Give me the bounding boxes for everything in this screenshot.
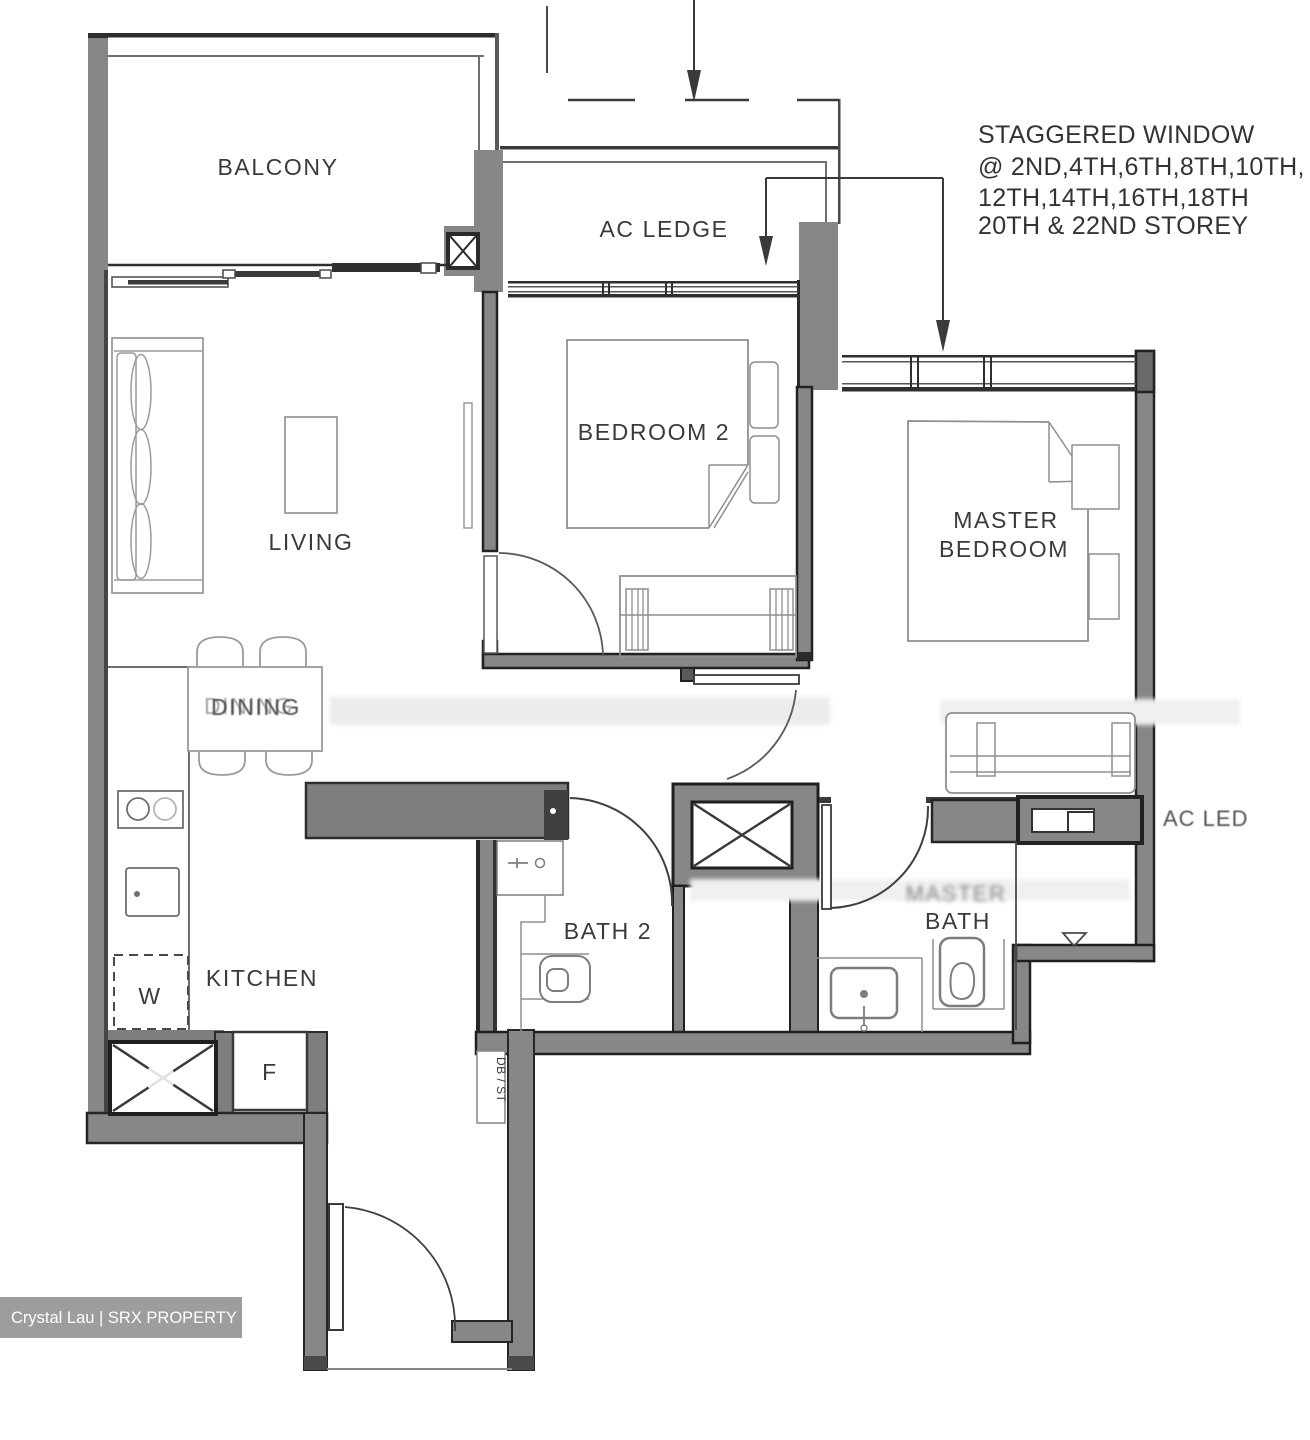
svg-text:W: W — [138, 983, 161, 1009]
svg-text:DB / ST: DB / ST — [494, 1057, 508, 1103]
svg-text:Crystal Lau | SRX PROPERTY: Crystal Lau | SRX PROPERTY — [11, 1309, 237, 1327]
svg-text:AC LED: AC LED — [1163, 806, 1248, 831]
svg-text:BEDROOM 2: BEDROOM 2 — [578, 419, 730, 445]
svg-text:BALCONY: BALCONY — [217, 154, 338, 180]
svg-text:KITCHEN: KITCHEN — [206, 965, 318, 991]
svg-text:DINING: DINING — [204, 693, 294, 719]
svg-text:AC LEDGE: AC LEDGE — [599, 216, 728, 242]
svg-text:BATH 2: BATH 2 — [564, 918, 652, 944]
svg-text:20TH & 22ND STOREY: 20TH & 22ND STOREY — [978, 212, 1248, 240]
svg-text:F: F — [262, 1059, 278, 1085]
svg-text:12TH,14TH,16TH,18TH: 12TH,14TH,16TH,18TH — [978, 184, 1249, 212]
svg-text:STAGGERED WINDOW: STAGGERED WINDOW — [978, 121, 1255, 149]
svg-text:MASTER: MASTER — [906, 881, 1007, 906]
svg-text:MASTER: MASTER — [953, 507, 1058, 533]
svg-text:BATH: BATH — [925, 908, 991, 934]
svg-text:@ 2ND,4TH,6TH,8TH,10TH,: @ 2ND,4TH,6TH,8TH,10TH, — [978, 153, 1305, 181]
svg-text:BEDROOM: BEDROOM — [939, 536, 1069, 562]
svg-text:LIVING: LIVING — [268, 529, 353, 555]
